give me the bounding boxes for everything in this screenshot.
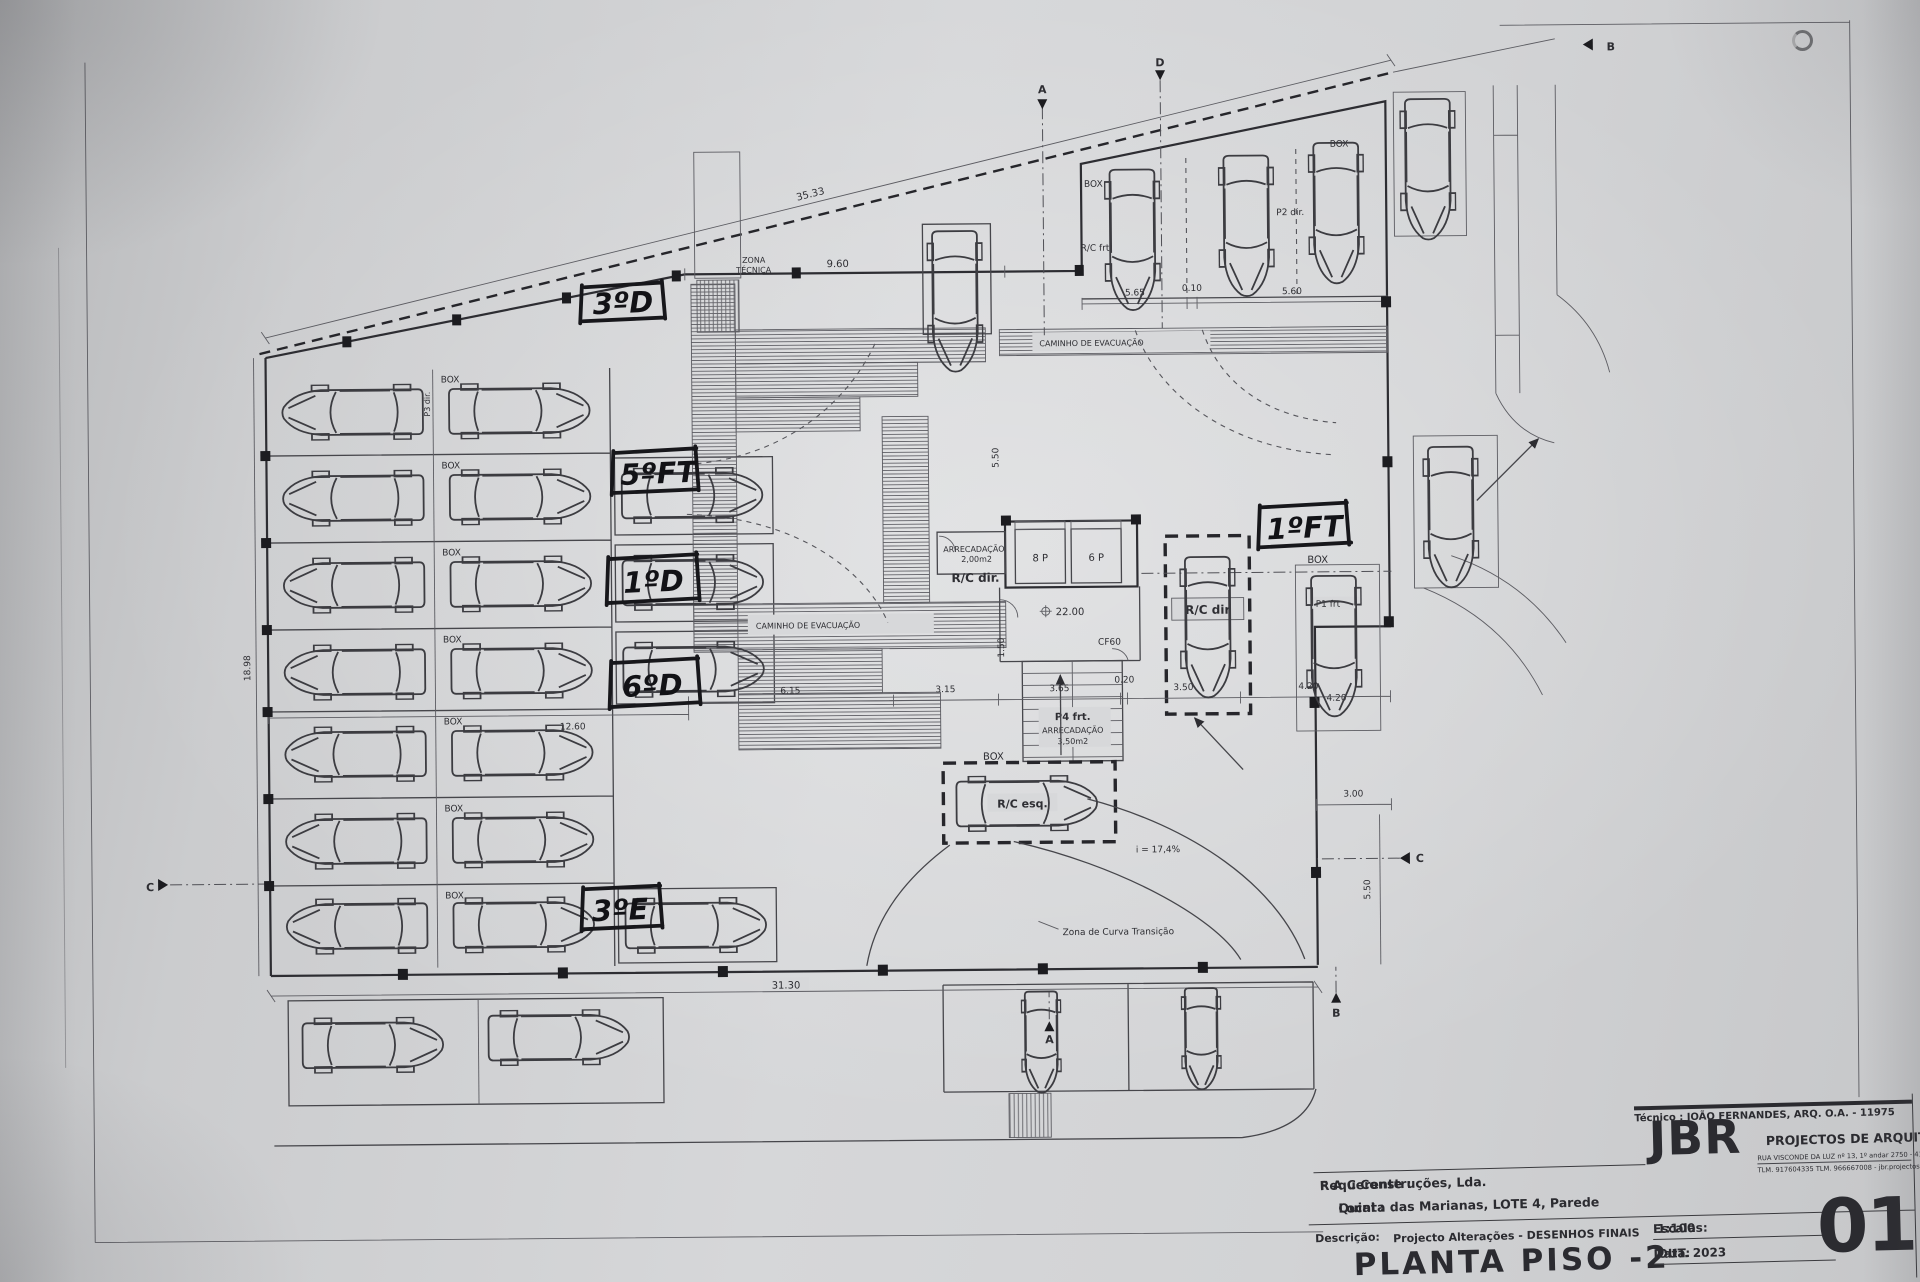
car-icon [285, 726, 426, 782]
dim: 3.15 [935, 685, 955, 695]
slope-label: i = 17,4% [1136, 845, 1181, 855]
section-c: C [1416, 852, 1424, 865]
date-line: Data: OUT. 2023 [1653, 1243, 1835, 1265]
handwritten-annotation: 1ºFT [1258, 501, 1351, 550]
unit-label-rc-dir: R/C dir. [951, 571, 999, 585]
svg-text:3ºE: 3ºE [591, 892, 649, 928]
svg-text:1ºD: 1ºD [622, 563, 684, 600]
box-label: BOX [442, 548, 461, 558]
handwritten-annotation: 5ºFT [611, 446, 699, 495]
hole-punch-mark [1792, 30, 1813, 51]
client-value: F A C Construções, Lda. [1320, 1174, 1487, 1193]
box-label: BOX [1330, 140, 1349, 150]
car-icon [450, 556, 591, 612]
storage-area-label: 3,50m2 [1057, 737, 1088, 746]
section-d: D [1155, 56, 1164, 69]
site-value: Quinta das Marianas, LOTE 4, Parede [1338, 1194, 1599, 1215]
description-label: Descrição: [1315, 1231, 1380, 1246]
section-b: B [1332, 1007, 1341, 1020]
storage-label: ARRECADAÇÃO [1042, 725, 1103, 736]
car-icon [286, 813, 427, 869]
bottom-parking-strip: 31.30 [267, 973, 1323, 1146]
title-block: Técnico : JOÃO FERNANDES, ARQ. O.A. - 11… [1298, 1087, 1920, 1282]
transition-curve-label: Zona de Curva Transição [1063, 927, 1175, 938]
box-label: BOX [1084, 180, 1103, 190]
box-label: BOX [445, 891, 464, 901]
handwritten-annotation: 3ºD [580, 281, 665, 324]
dim: 5.50 [1363, 879, 1373, 899]
dim: 0.10 [1182, 284, 1202, 294]
box-label: BOX [443, 635, 462, 645]
center-right-spots: R/C dir BOX P1 frt 4.20 [1165, 534, 1381, 732]
dim: 3.65 [1049, 684, 1069, 694]
date-value: OUT. 2023 [1658, 1245, 1727, 1261]
handwritten-annotation: 6ºD [609, 656, 700, 709]
dim: 0.20 [1114, 675, 1134, 685]
sheet-number: 01 [1816, 1188, 1917, 1264]
ramp-hatching: CAMINHO DE EVACUAÇÃO CAMINHO DE EVACUAÇÃ… [690, 146, 1391, 750]
fire-door-label: CF60 [1098, 638, 1121, 648]
unit-label-rc-frt: R/C frt [1081, 244, 1110, 254]
car-icon [302, 1017, 443, 1073]
dim: 5.60 [1282, 287, 1302, 297]
box-label: BOX [441, 375, 460, 385]
scanned-floor-plan-photo: 35.33 BOX BOX BOX BOX BOX BOX BOX P3 dir… [0, 0, 1920, 1282]
box-label: BOX [983, 752, 1004, 763]
box-label: BOX [444, 804, 463, 814]
spot-label-rc-dir: R/C dir [1185, 603, 1230, 617]
dim: 3.00 [1343, 789, 1363, 799]
section-c: C [146, 881, 154, 894]
dim-bottom: 31.30 [772, 980, 801, 991]
svg-text:5ºFT: 5ºFT [619, 455, 699, 492]
car-icon [1181, 988, 1222, 1089]
section-markers: A D B C C B A [139, 38, 1624, 1054]
box-label: BOX [441, 461, 460, 471]
zona-tecnica-label: ZONA [742, 256, 766, 265]
firm-contact: TLM. 917604335 TLM. 966667008 - jbr.proj… [1757, 1163, 1911, 1175]
car-icon [1218, 155, 1274, 296]
car-icon [453, 897, 594, 953]
car-icon [1308, 143, 1364, 284]
car-icon [1021, 991, 1062, 1092]
car-icon [1180, 557, 1236, 698]
dim: 3.50 [1173, 683, 1193, 693]
section-a: A [1045, 1033, 1054, 1046]
svg-text:3ºD: 3ºD [592, 285, 654, 322]
car-icon [452, 725, 593, 781]
bottom-center-spot: BOX R/C esq. i = 17,4% Zona de Curva Tra… [943, 750, 1181, 939]
car-icon [1400, 99, 1456, 240]
svg-text:1ºFT: 1ºFT [1266, 509, 1346, 546]
firm-tagline: PROJECTOS DE ARQUITECTURA [1766, 1128, 1920, 1148]
car-icon [453, 812, 594, 868]
firm-logo: JBR [1648, 1114, 1742, 1163]
box-label: BOX [444, 717, 463, 727]
evac-path-label: CAMINHO DE EVACUAÇÃO [1039, 337, 1143, 348]
svg-text:6ºD: 6ºD [621, 667, 683, 704]
title-block-divider [1313, 1164, 1645, 1173]
evac-path-label: CAMINHO DE EVACUAÇÃO [756, 620, 860, 631]
dim: 5.50 [991, 447, 1001, 467]
dim: 18.98 [243, 655, 253, 681]
level-label: 22.00 [1056, 607, 1085, 618]
section-a: A [1038, 83, 1047, 96]
car-icon [283, 470, 424, 526]
elevator-6p-label: 6 P [1088, 553, 1104, 564]
spot-label-p2: P2 dir. [1276, 208, 1304, 218]
dim: 9.60 [827, 259, 849, 270]
spot-label-rc-esq: R/C esq. [997, 797, 1048, 810]
storage-label: ARRECADAÇÃO [943, 544, 1004, 555]
car-icon [488, 1009, 629, 1065]
scale-line: Escalas: 1:100 [1653, 1218, 1835, 1240]
car-icon [282, 384, 423, 440]
parked-cars [280, 99, 1484, 1100]
spot-label-p3: P3 dir. [423, 392, 432, 417]
car-icon [1423, 447, 1479, 588]
plan-sheet: 35.33 BOX BOX BOX BOX BOX BOX BOX P3 dir… [0, 0, 1920, 1282]
car-icon [284, 557, 425, 613]
box-label: BOX [1307, 555, 1328, 566]
elevator-8p-label: 8 P [1032, 553, 1048, 564]
scale-value: 1:100 [1657, 1221, 1696, 1236]
site-boundary: 35.33 [257, 39, 1558, 354]
car-icon [451, 643, 592, 699]
floor-plan-drawing: 35.33 BOX BOX BOX BOX BOX BOX BOX P3 dir… [0, 0, 1920, 1282]
car-icon [284, 644, 425, 700]
section-b: B [1607, 40, 1616, 53]
street-right [1393, 84, 1612, 696]
car-icon [449, 383, 590, 439]
car-icon [287, 898, 428, 954]
dim: 6.15 [780, 686, 800, 696]
storage-area-label: 2,00m2 [961, 555, 992, 564]
drawing-title: PLANTA PISO -2 [1337, 1239, 1686, 1282]
dim: 1.50 [997, 637, 1007, 657]
car-icon [450, 469, 591, 525]
